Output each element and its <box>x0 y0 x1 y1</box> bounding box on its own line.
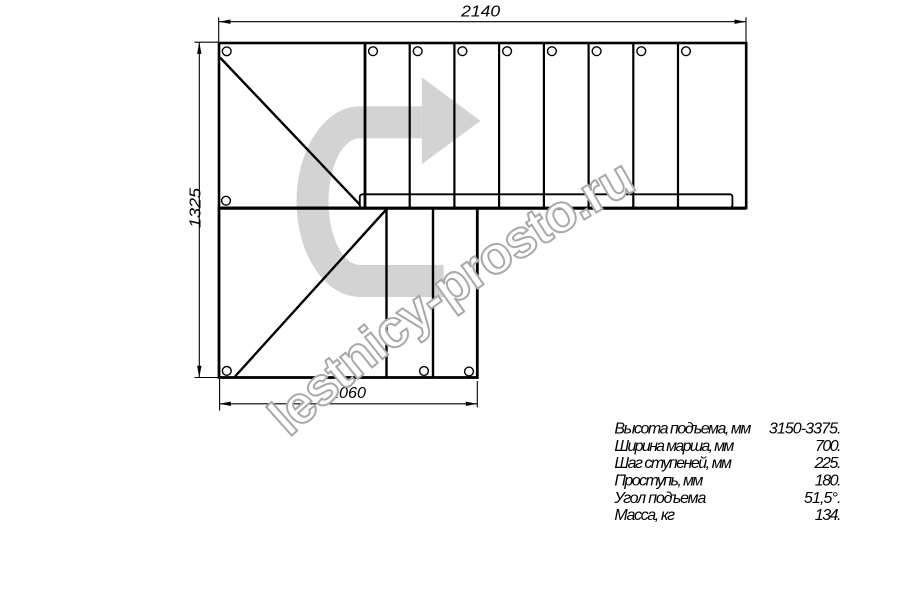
svg-text:2140: 2140 <box>460 3 501 20</box>
svg-text:3150-3375.: 3150-3375. <box>769 421 842 438</box>
svg-text:134.: 134. <box>815 507 842 524</box>
svg-text:Масса, кг: Масса, кг <box>614 507 675 524</box>
svg-text:51,5°.: 51,5°. <box>804 490 842 507</box>
svg-text:Угол подъема: Угол подъема <box>613 490 706 507</box>
svg-text:1325: 1325 <box>188 188 205 228</box>
svg-text:Высота подъема, мм: Высота подъема, мм <box>614 421 751 438</box>
svg-text:Ширина марша, мм: Ширина марша, мм <box>614 438 734 455</box>
svg-text:225.: 225. <box>814 455 842 472</box>
svg-text:700.: 700. <box>815 438 842 455</box>
svg-text:Шаг ступеней, мм: Шаг ступеней, мм <box>614 455 732 472</box>
svg-text:180.: 180. <box>815 472 842 489</box>
svg-text:Проступь, мм: Проступь, мм <box>614 472 703 489</box>
